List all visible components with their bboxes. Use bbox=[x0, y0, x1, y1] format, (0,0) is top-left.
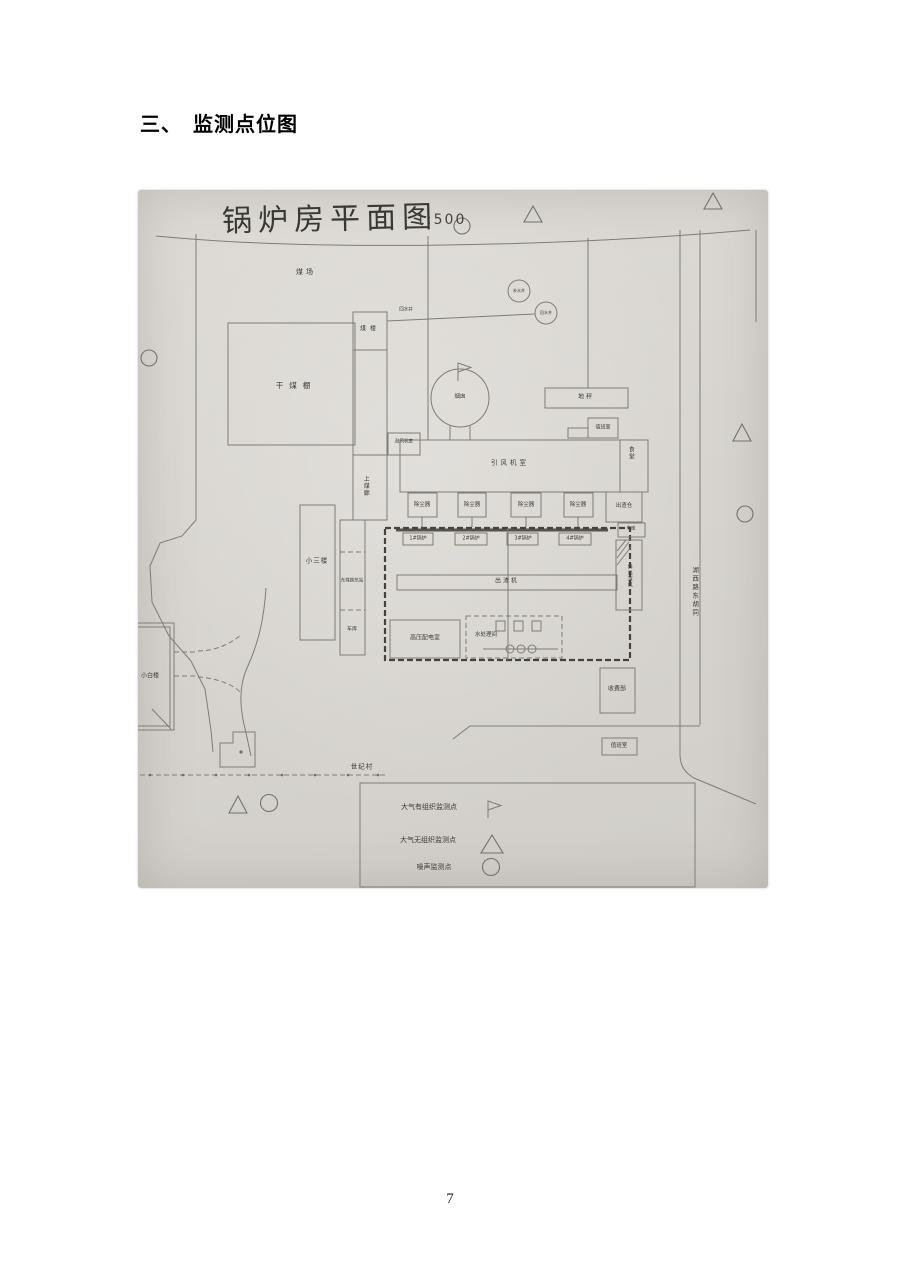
inclined-slag-hatch bbox=[617, 540, 631, 565]
label-weighbridge: 地秤 bbox=[578, 395, 594, 402]
monitoring-point-symbols bbox=[141, 193, 753, 813]
label-coal-corridor: 上煤廊 bbox=[362, 476, 369, 497]
label-duty-room-top: 值班室 bbox=[595, 425, 610, 431]
label-dust-collector-3: 除尘器 bbox=[518, 502, 535, 508]
road-line-outer bbox=[680, 230, 756, 804]
legend-triangle-icon bbox=[481, 835, 503, 853]
label-garage-left: 车库 bbox=[347, 627, 357, 633]
label-road-name: 湖西路东胡同 bbox=[690, 567, 697, 618]
label-well-right: 回水井 bbox=[540, 311, 552, 315]
label-slag-machine: 出渣机 bbox=[495, 579, 519, 586]
label-hv-distribution-room: 高压配电室 bbox=[410, 636, 440, 643]
label-inclined-slag-machine: 斜出渣机 bbox=[626, 564, 632, 588]
label-east-coal-heat-station: 东煤换热站 bbox=[341, 580, 364, 585]
air-point-triangle-right bbox=[733, 424, 751, 441]
air-point-triangle-top-right bbox=[704, 193, 722, 209]
noise-point-circle-left bbox=[141, 350, 157, 366]
coal-corridor-upper bbox=[353, 455, 387, 520]
noise-point-circle-right bbox=[737, 506, 753, 522]
air-point-triangle-top bbox=[524, 206, 542, 222]
label-boiler-1: 1#锅炉 bbox=[409, 536, 426, 542]
flag-icon bbox=[458, 363, 471, 381]
coal-corridor-lower bbox=[340, 520, 365, 655]
noise-point-circle-bottom bbox=[261, 795, 278, 812]
plan-title: 锅炉房平面图 bbox=[222, 192, 439, 241]
air-point-triangle-bottom bbox=[229, 796, 247, 813]
label-coal-yard: 煤场 bbox=[296, 269, 316, 277]
collector-stubs bbox=[422, 517, 578, 527]
page-number: 7 bbox=[0, 1191, 900, 1208]
label-well-line: 回水井 bbox=[399, 309, 413, 314]
label-dust-collector-2: 除尘器 bbox=[464, 502, 481, 508]
curved-road bbox=[241, 588, 266, 756]
plan-scale: 1:500 bbox=[416, 212, 466, 228]
label-garage-right: 车库 bbox=[627, 528, 636, 533]
equipment-box-1 bbox=[496, 621, 505, 631]
equipment-box-3 bbox=[532, 621, 541, 631]
label-induced-fan-room: 引风机室 bbox=[491, 459, 529, 466]
duty-room-step bbox=[568, 428, 588, 438]
well-pipe-line bbox=[387, 314, 535, 321]
section-heading: 三、 监测点位图 bbox=[140, 108, 298, 137]
label-dry-coal-shed: 干煤棚 bbox=[276, 382, 317, 390]
dashed-drive-3 bbox=[198, 677, 240, 692]
label-dust-collector-1: 除尘器 bbox=[414, 502, 431, 508]
site-plan-drawing bbox=[138, 190, 768, 888]
label-dust-collector-4: 除尘器 bbox=[570, 502, 587, 508]
site-boundary-left bbox=[150, 234, 213, 752]
label-canteen: 食堂 bbox=[627, 446, 634, 460]
legend-label-noise: 噪声监测点 bbox=[417, 864, 452, 872]
legend-circle-icon bbox=[483, 859, 500, 876]
l-building-mark bbox=[239, 750, 242, 753]
equipment-box-2 bbox=[514, 621, 523, 631]
legend-box bbox=[360, 783, 695, 887]
label-small-white-building: 小白楼 bbox=[141, 674, 159, 681]
label-boiler-2: 2#锅炉 bbox=[462, 536, 479, 542]
legend-flag-icon bbox=[488, 801, 501, 818]
chimney-stem bbox=[450, 426, 470, 440]
legend-label-fugitive-air: 大气无组织监测点 bbox=[400, 837, 456, 845]
site-plan-photo: 锅炉房平面图 1:500 煤场 补水井 回水井 回水井 煤楼 干煤棚 烟囱 地秤… bbox=[138, 190, 768, 888]
label-blower-room: 鼓风机室 bbox=[395, 441, 413, 446]
label-slag-bin: 出渣仓 bbox=[616, 503, 633, 509]
label-boiler-4: 4#锅炉 bbox=[566, 536, 583, 542]
label-boiler-3: 3#锅炉 bbox=[514, 536, 531, 542]
label-chimney: 烟囱 bbox=[454, 394, 465, 400]
label-small-three-storey: 小三楼 bbox=[306, 557, 329, 564]
label-century-village: 世纪村 bbox=[351, 763, 374, 770]
label-toll-office: 收费部 bbox=[608, 687, 626, 694]
label-duty-room-bottom: 值班室 bbox=[611, 743, 628, 749]
small-three-storey-outline bbox=[300, 505, 335, 640]
label-water-treatment-room: 水处理间 bbox=[475, 632, 497, 638]
coal-tower-outline bbox=[353, 312, 387, 455]
legend-label-organized-air: 大气有组织监测点 bbox=[401, 804, 457, 812]
dashed-drive-2 bbox=[198, 634, 242, 651]
road-line-bottom bbox=[453, 726, 700, 739]
label-well-top: 补水井 bbox=[513, 289, 525, 293]
label-coal-tower: 煤楼 bbox=[360, 327, 380, 334]
